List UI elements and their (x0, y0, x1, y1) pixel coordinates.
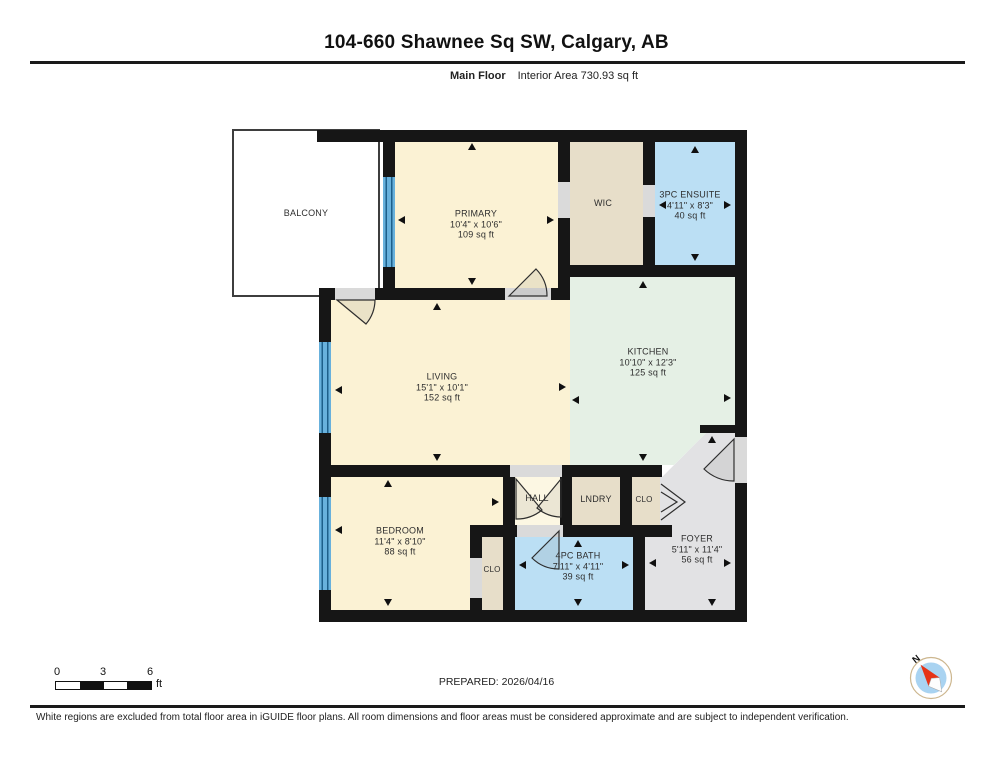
wall (470, 598, 482, 610)
door-opening (517, 525, 563, 537)
measure-arrow (574, 540, 582, 547)
wall (319, 465, 510, 477)
room-label-living: LIVING15'1" x 10'1"152 sq ft (416, 371, 468, 403)
wall (470, 537, 482, 558)
wall (633, 537, 645, 610)
measure-arrow (433, 454, 441, 461)
window (319, 342, 331, 433)
wall (551, 288, 570, 300)
measure-arrow (639, 281, 647, 288)
floor-subtitle: Main FloorInterior Area 730.93 sq ft (450, 70, 638, 82)
interior-area-label: Interior Area 730.93 sq ft (518, 70, 638, 82)
wall (563, 525, 672, 537)
compass-north-label: N (910, 653, 922, 666)
wall (735, 483, 747, 622)
measure-arrow (547, 216, 554, 224)
measure-arrow (639, 454, 647, 461)
wall (700, 425, 735, 433)
measure-arrow (398, 216, 405, 224)
wall (319, 288, 335, 300)
measure-arrow (708, 436, 716, 443)
room-label-wic: WIC (594, 198, 612, 209)
disclaimer-text: White regions are excluded from total fl… (36, 712, 966, 723)
room-label-bedroom: BEDROOM11'4" x 8'10"88 sq ft (374, 525, 425, 557)
wall (558, 130, 570, 182)
measure-arrow (559, 383, 566, 391)
measure-arrow (724, 201, 731, 209)
measure-arrow (691, 146, 699, 153)
measure-arrow (572, 396, 579, 404)
measure-arrow (574, 599, 582, 606)
wall (383, 130, 395, 177)
footer-divider (30, 705, 965, 708)
door-opening (558, 182, 570, 218)
door-opening (735, 437, 747, 483)
compass-icon: N (908, 651, 952, 699)
window (319, 497, 331, 590)
wall (562, 465, 662, 477)
measure-arrow (335, 386, 342, 394)
measure-arrow (724, 559, 731, 567)
wall (620, 477, 632, 525)
measure-arrow (335, 526, 342, 534)
measure-arrow (468, 143, 476, 150)
wall (317, 130, 747, 142)
measure-arrow (691, 254, 699, 261)
room-label-primary: PRIMARY10'4" x 10'6"109 sq ft (450, 208, 502, 240)
header-divider (30, 61, 965, 64)
measure-arrow (724, 394, 731, 402)
wall (503, 477, 515, 610)
measure-arrow (384, 599, 392, 606)
door-opening (470, 558, 482, 598)
room-label-foyer-closet: CLO (635, 495, 652, 506)
wall (558, 265, 747, 277)
room-label-bedroom-closet: CLO (483, 565, 500, 576)
wall (735, 130, 747, 437)
room-label-ensuite: 3PC ENSUITE4'11" x 8'3"40 sq ft (659, 189, 720, 221)
wall (470, 525, 515, 537)
measure-arrow (433, 303, 441, 310)
room-label-bath: 4PC BATH7'11" x 4'11"39 sq ft (553, 550, 604, 582)
room-label-balcony: BALCONY (284, 208, 328, 219)
door-opening (643, 185, 655, 217)
room-label-foyer: FOYER5'11" x 11'4"56 sq ft (672, 533, 723, 565)
floor-plan-page: 104-660 Shawnee Sq SW, Calgary, AB Main … (0, 0, 993, 768)
prepared-date: PREPARED: 2026/04/16 (0, 676, 993, 688)
measure-arrow (708, 599, 716, 606)
door-opening (335, 288, 375, 300)
measure-arrow (519, 561, 526, 569)
room-label-hall: HALL (525, 493, 548, 504)
room-label-laundry: LNDRY (580, 494, 611, 505)
room-label-kitchen: KITCHEN10'10" x 12'3"125 sq ft (619, 346, 676, 378)
door-opening (510, 465, 562, 477)
measure-arrow (384, 480, 392, 487)
wall (375, 288, 505, 300)
measure-arrow (622, 561, 629, 569)
wall (319, 610, 747, 622)
door-opening (505, 288, 551, 300)
measure-arrow (649, 559, 656, 567)
floor-label: Main Floor (450, 70, 506, 82)
wall (643, 130, 655, 185)
wall (560, 477, 572, 525)
measure-arrow (492, 498, 499, 506)
window (383, 177, 395, 267)
measure-arrow (468, 278, 476, 285)
page-title: 104-660 Shawnee Sq SW, Calgary, AB (0, 32, 993, 54)
